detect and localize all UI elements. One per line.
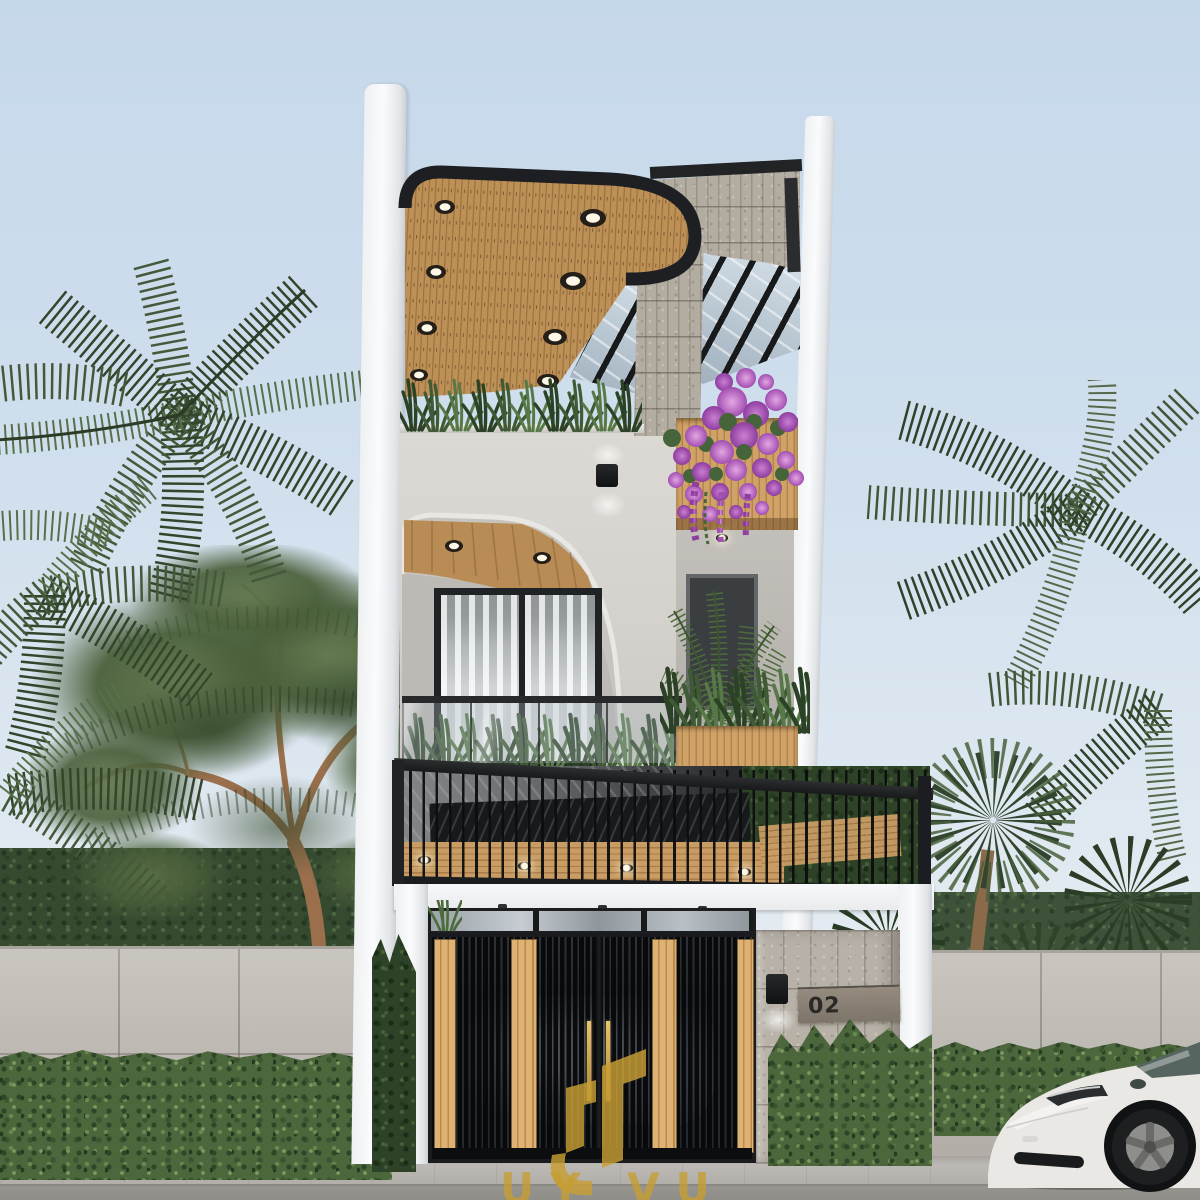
balustrade-top-rail: [402, 696, 682, 703]
corner-plants: [372, 934, 416, 1172]
architectural-render: .fA{fill:none;stroke:#33462c;stroke-widt…: [0, 0, 1200, 1200]
transom-plant: [428, 900, 462, 932]
house-number: 02: [798, 993, 841, 1019]
wall-sconce: [596, 464, 618, 487]
bougainvillea-flowers: [636, 352, 822, 548]
railing-end-post-right: [918, 776, 931, 888]
pillar-wall-lamp: [766, 974, 788, 1004]
house-number-plaque: 02: [798, 987, 901, 1024]
gate-wood-strip: [737, 939, 754, 1153]
gate-wood-strip: [434, 939, 456, 1153]
planter-lower-plants: .c1{stroke:#3f5a34;stroke-width:3.4}.c2{…: [660, 664, 810, 734]
ground-beam: [394, 884, 934, 910]
watermark-letters: UY VU: [500, 1164, 726, 1200]
railing-end-post-left: [392, 760, 404, 886]
watermark-text: UY VU: [500, 1164, 820, 1200]
lamp-glow: [752, 1000, 804, 1040]
rooftop-terrace-plants: .g1{stroke:#3f5a34;stroke-width:3.2}.g2{…: [400, 374, 642, 432]
hedge-left: [0, 1050, 392, 1180]
white-car: [988, 1028, 1200, 1193]
balustrade-glass: [402, 703, 682, 763]
gate-transom: [428, 908, 756, 934]
glass-balustrade: [402, 696, 682, 768]
